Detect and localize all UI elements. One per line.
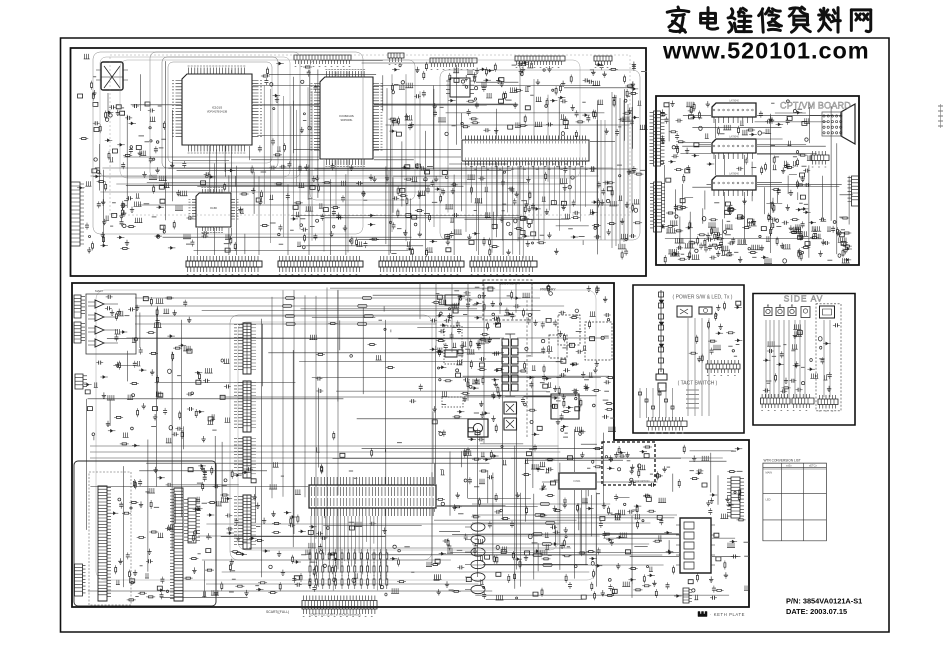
svg-text:SDP0005L: SDP0005L <box>340 119 353 122</box>
svg-text:IC601: IC601 <box>574 479 581 483</box>
svg-text:WTR CONVERSION LIST: WTR CONVERSION LIST <box>764 459 801 463</box>
svg-text:LED: LED <box>766 498 771 502</box>
svg-text:LA78040: LA78040 <box>729 173 739 176</box>
svg-text:IC101S: IC101S <box>212 106 222 110</box>
svg-text:SECONDARY: SECONDARY <box>499 282 521 286</box>
svg-text:VDP3417B/3413B: VDP3417B/3413B <box>207 110 228 113</box>
svg-text:BY SOP OPTION: BY SOP OPTION <box>631 480 650 483</box>
svg-text:CPT/VM BOARD: CPT/VM BOARD <box>780 101 851 111</box>
svg-text:MAIN: MAIN <box>766 471 773 475</box>
svg-text:xxEx: xxEx <box>786 464 792 468</box>
svg-text:· KETH PLATE: · KETH PLATE <box>710 612 745 617</box>
svg-text:xETCx: xETCx <box>809 464 817 468</box>
svg-text:P/N: 3854VA0121A-S1: P/N: 3854VA0121A-S1 <box>786 597 862 606</box>
svg-text:IC30: IC30 <box>210 206 217 210</box>
svg-text:( POWER S/W & LED, Tx ): ( POWER S/W & LED, Tx ) <box>673 295 733 301</box>
svg-text:LA78040: LA78040 <box>729 136 739 139</box>
svg-text:SIDE AV: SIDE AV <box>784 294 824 304</box>
svg-text:ICC6014S: ICC6014S <box>339 114 353 118</box>
svg-text:( TACT SWITCH ): ( TACT SWITCH ) <box>678 381 718 387</box>
svg-text:LA78040: LA78040 <box>729 100 739 103</box>
svg-text:MAIN: MAIN <box>95 289 103 293</box>
svg-text:SCART( FULL SCART or PHONO(opt: SCART( FULL SCART or PHONO(option)(x)) <box>309 613 361 617</box>
svg-text:www.520101.com: www.520101.com <box>662 38 871 64</box>
svg-text:PRIMARY: PRIMARY <box>540 288 556 292</box>
svg-text:DATE: 2003.07.15: DATE: 2003.07.15 <box>786 607 847 616</box>
svg-text:SCART((FULL): SCART((FULL) <box>266 610 289 614</box>
